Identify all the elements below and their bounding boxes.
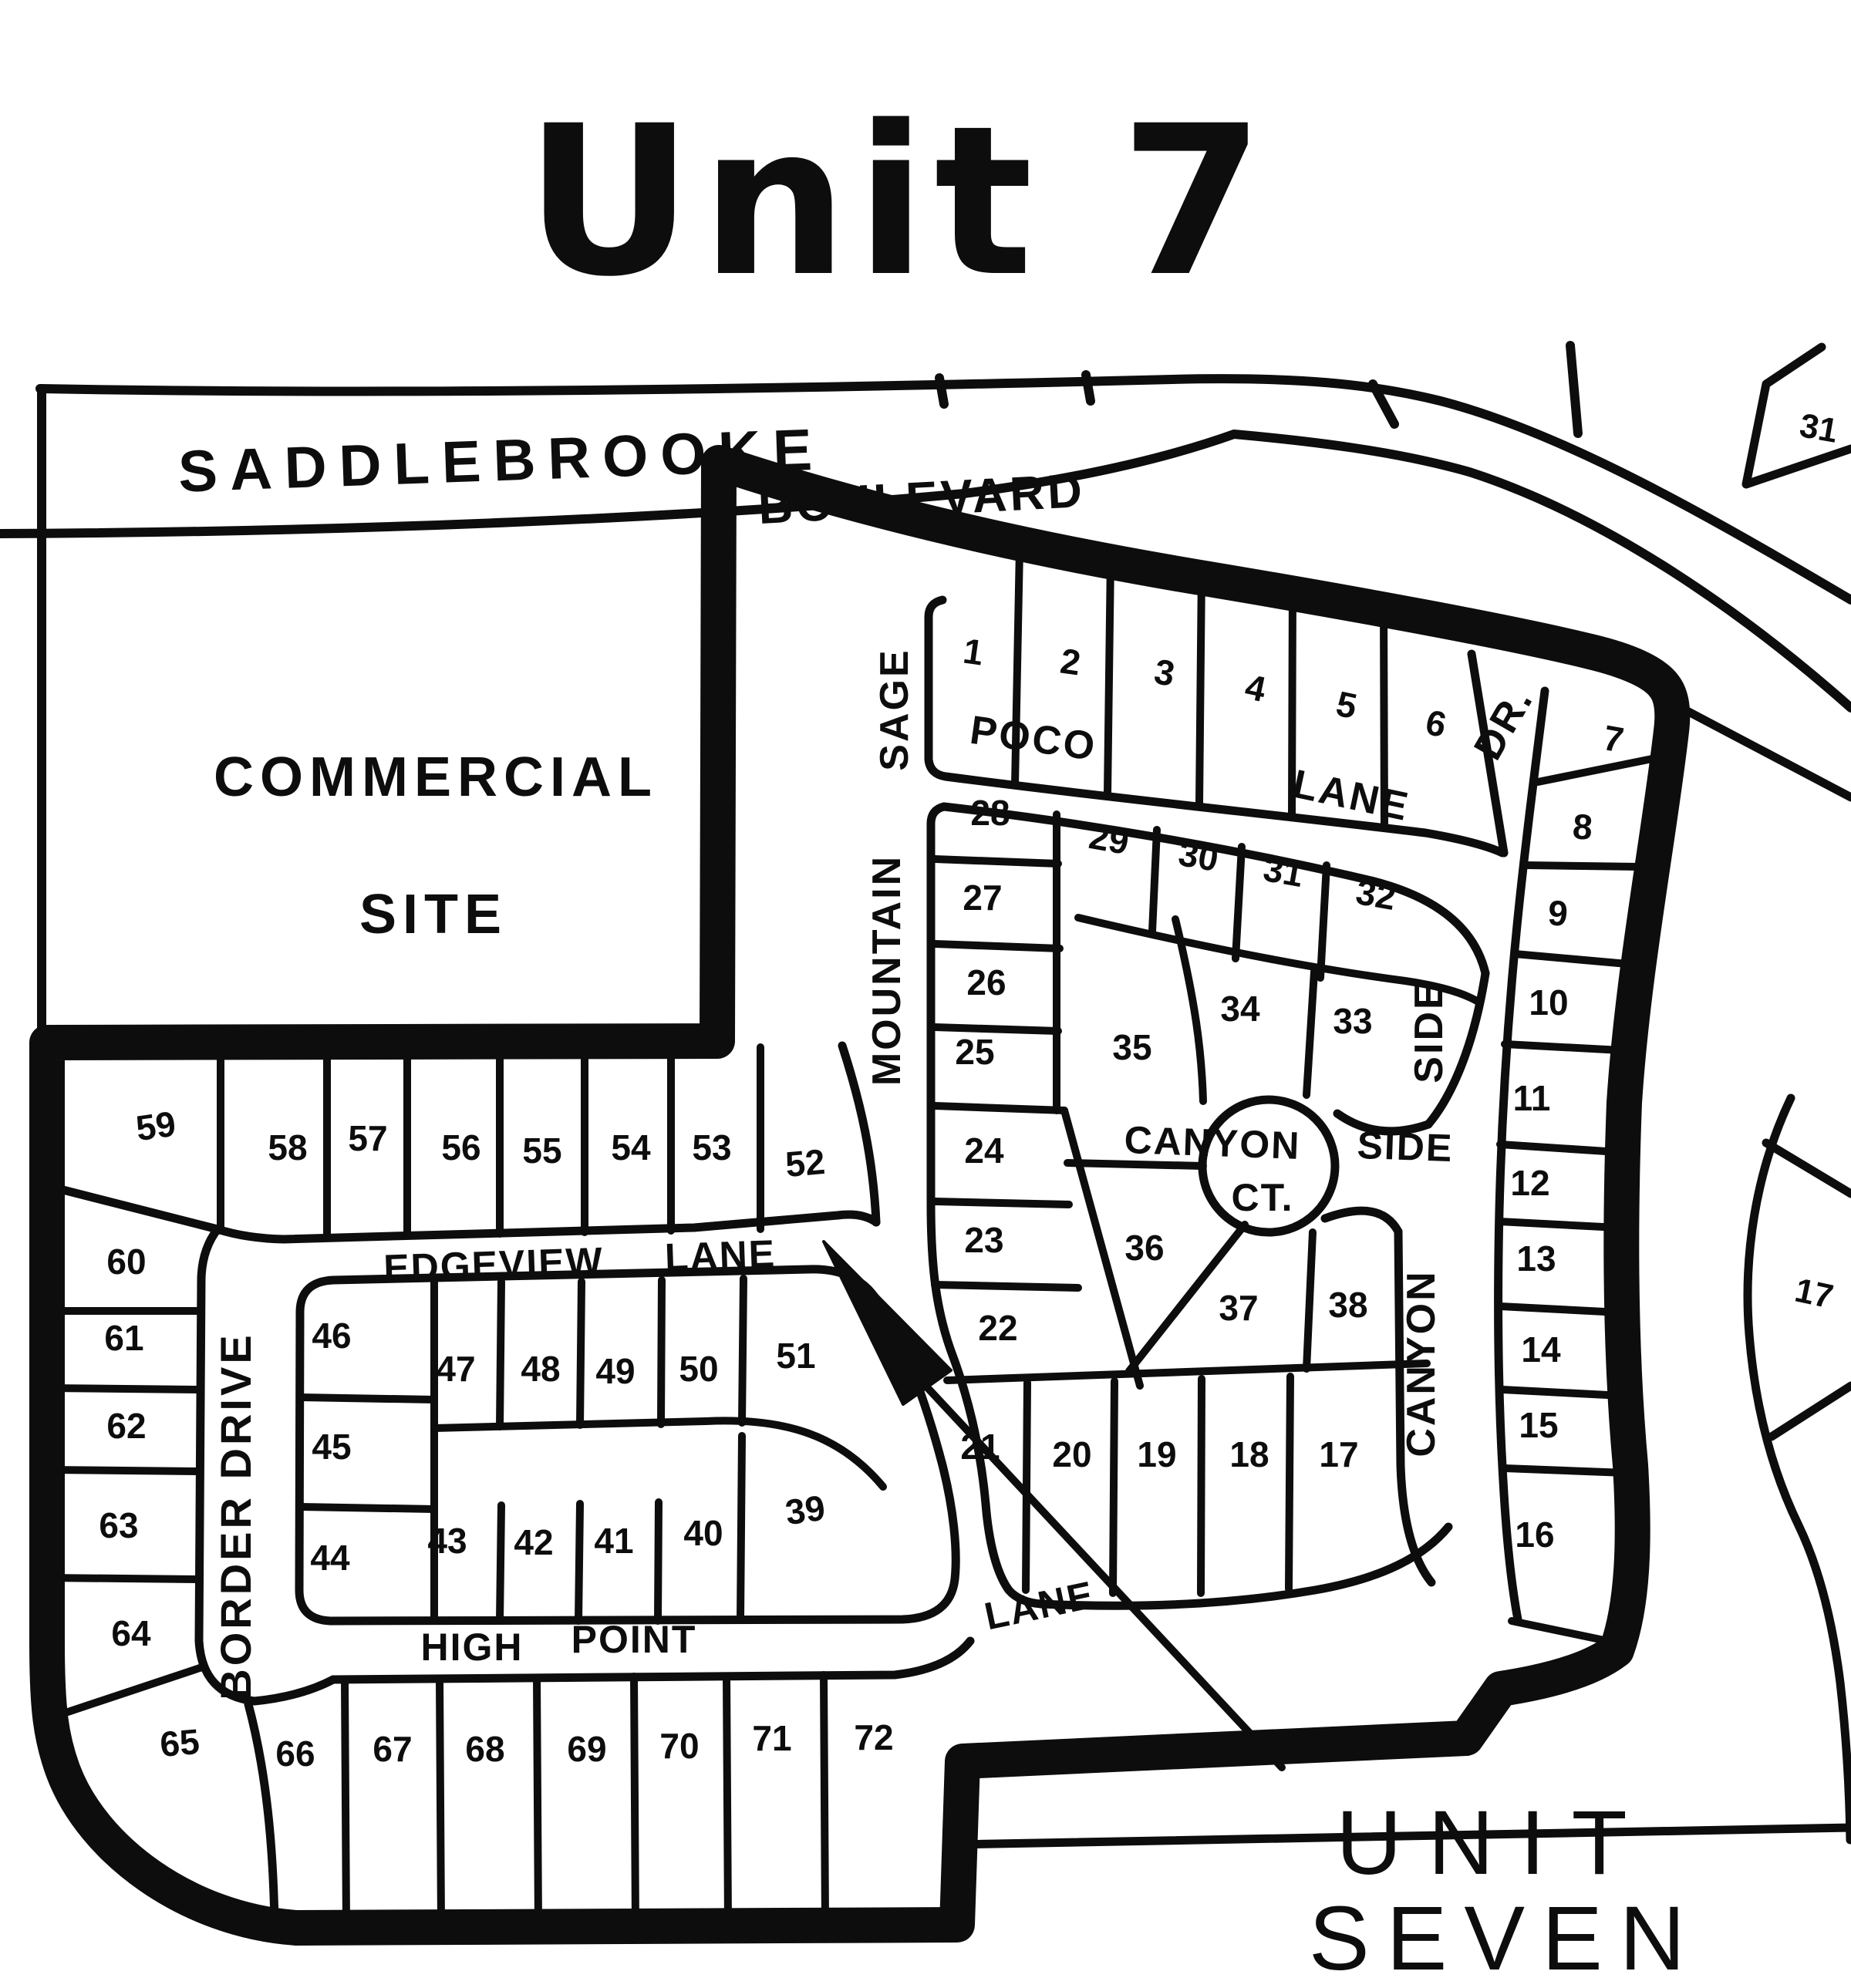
lot-number-39: 39 [783, 1490, 827, 1531]
area-label-commercial-1: COMMERCIAL [214, 750, 658, 805]
lot-number-59: 59 [133, 1106, 177, 1147]
lot-number-22: 22 [978, 1310, 1017, 1346]
lot-number-71: 71 [752, 1720, 791, 1756]
lot-number-33: 33 [1333, 1003, 1372, 1039]
unit-seven-leader-arrow [824, 1242, 1282, 1767]
lot-number-23: 23 [964, 1222, 1003, 1258]
canyon-side-ct-neck-bottom [1325, 1211, 1398, 1232]
lot-number-30: 30 [1176, 835, 1221, 877]
lot-number-65: 65 [159, 1723, 201, 1762]
street-label-point: POINT [571, 1620, 697, 1659]
lot-number-68: 68 [465, 1731, 504, 1767]
lot-number-34: 34 [1220, 991, 1259, 1026]
street-label-high: HIGH [421, 1628, 524, 1666]
lot-number-13: 13 [1516, 1241, 1556, 1276]
area-label-commercial-2: SITE [359, 887, 507, 942]
street-label-mountain-vertical: MOUNTAIN [867, 854, 907, 1086]
lot-number-70: 70 [659, 1728, 699, 1764]
lot-number-45: 45 [312, 1429, 351, 1464]
east-culdesac-arc [1748, 1098, 1850, 1840]
lot-number-57: 57 [348, 1120, 387, 1156]
lot-number-25: 25 [955, 1034, 994, 1070]
lot-number-63: 63 [99, 1508, 138, 1543]
lot-number-42: 42 [514, 1525, 553, 1560]
lot-number-14: 14 [1521, 1332, 1560, 1367]
road-tick-marks [939, 345, 1578, 433]
lot-number-52: 52 [784, 1144, 827, 1182]
lot-number-16: 16 [1515, 1517, 1554, 1552]
street-label-canyon-ct-2: SIDE [1357, 1126, 1454, 1168]
lot-number-32: 32 [1354, 874, 1398, 915]
lot-number-50: 50 [679, 1351, 718, 1387]
lot-number-17: 17 [1319, 1437, 1358, 1472]
street-label-border-drive: BORDER DRIVE [214, 1332, 258, 1700]
lot-number-49: 49 [595, 1353, 635, 1389]
street-label-sage-vertical: SAGE [875, 648, 915, 770]
lot-number-72: 72 [854, 1720, 893, 1755]
northeast-road-edge [1681, 708, 1851, 797]
lot-number-43: 43 [427, 1523, 467, 1558]
lot-number-51: 51 [776, 1338, 815, 1373]
lot-number-31: 31 [1261, 851, 1306, 892]
lot-number-58: 58 [268, 1130, 307, 1165]
lot-number-37: 37 [1219, 1290, 1258, 1326]
lot-number-56: 56 [441, 1130, 480, 1165]
street-label-canyon-ct-3: CT. [1232, 1178, 1294, 1217]
area-label-unit-seven-2: SEVEN [1309, 1893, 1702, 1984]
street-label-edgeview: EDGEVIEW [383, 1242, 604, 1288]
plat-map-page: Unit 7 [0, 0, 1851, 1988]
lot-number-67: 67 [373, 1731, 412, 1767]
lot-number-19: 19 [1137, 1437, 1176, 1472]
lot-number-24: 24 [964, 1133, 1003, 1168]
lot-number-48: 48 [521, 1351, 560, 1387]
lot-number-18: 18 [1229, 1437, 1269, 1472]
lot-number-27: 27 [963, 880, 1002, 915]
lot-number-46: 46 [312, 1318, 351, 1353]
lot-number-29: 29 [1087, 818, 1131, 860]
lot-number-38: 38 [1328, 1287, 1367, 1323]
street-label-side-vertical: SIDE [1409, 980, 1449, 1083]
lot-number-15: 15 [1519, 1407, 1558, 1443]
street-label-canyon-ct-1: CANYON [1124, 1120, 1301, 1165]
plat-linework [0, 0, 1851, 1988]
street-label-canyon-vertical: CANYON [1401, 1269, 1441, 1457]
lots-66-72-row [333, 1641, 970, 1925]
lot-number-61: 61 [104, 1320, 143, 1356]
lot-number-53: 53 [692, 1130, 731, 1165]
lot-number-36: 36 [1124, 1230, 1164, 1265]
lot-number-62: 62 [106, 1408, 146, 1444]
lot-number-35: 35 [1112, 1029, 1151, 1065]
lot-number-11: 11 [1513, 1080, 1551, 1116]
lot-number-47: 47 [436, 1351, 475, 1387]
lot-number-69: 69 [567, 1731, 606, 1767]
lot-number-8: 8 [1572, 808, 1594, 845]
lot-number-44: 44 [310, 1540, 349, 1575]
lot-number-21: 21 [960, 1429, 1000, 1464]
lot-number-12: 12 [1510, 1165, 1549, 1201]
unit-boundary [47, 463, 1672, 1928]
lot-number-60: 60 [106, 1244, 146, 1279]
lot-number-28: 28 [970, 795, 1010, 831]
lot-number-40: 40 [683, 1515, 723, 1551]
street-label-edgeview-lane: LANE [664, 1235, 777, 1277]
lots-39-51-block [299, 1269, 956, 1621]
partial-lot-number-17: 17 [1792, 1273, 1836, 1314]
partial-lot-number-31: 31 [1797, 409, 1840, 449]
lot-number-9: 9 [1547, 895, 1569, 932]
lot-number-26: 26 [966, 965, 1006, 1000]
lot-number-10: 10 [1529, 985, 1568, 1020]
area-label-unit-seven-1: UNIT [1336, 1798, 1653, 1889]
lot-number-41: 41 [594, 1523, 633, 1558]
lot-number-55: 55 [522, 1133, 561, 1168]
lot-number-66: 66 [275, 1736, 315, 1771]
lot-number-54: 54 [611, 1130, 650, 1165]
lot-number-20: 20 [1052, 1437, 1091, 1472]
lot-number-64: 64 [111, 1616, 150, 1651]
